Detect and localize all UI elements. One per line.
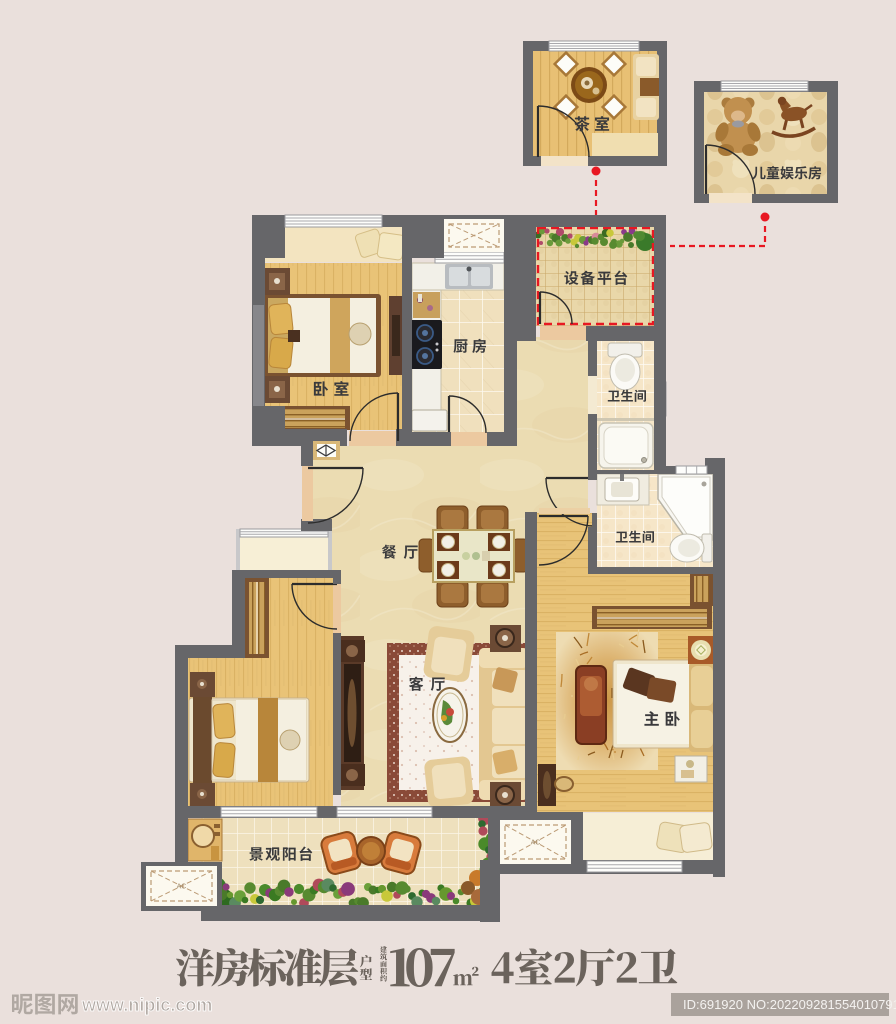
svg-text:AC: AC — [531, 840, 541, 847]
svg-text:ID:691920 NO:20220928155401079: ID:691920 NO:20220928155401079108 — [683, 997, 896, 1012]
svg-text:AC: AC — [177, 884, 187, 891]
svg-text:www.nipic.com: www.nipic.com — [81, 995, 212, 1015]
